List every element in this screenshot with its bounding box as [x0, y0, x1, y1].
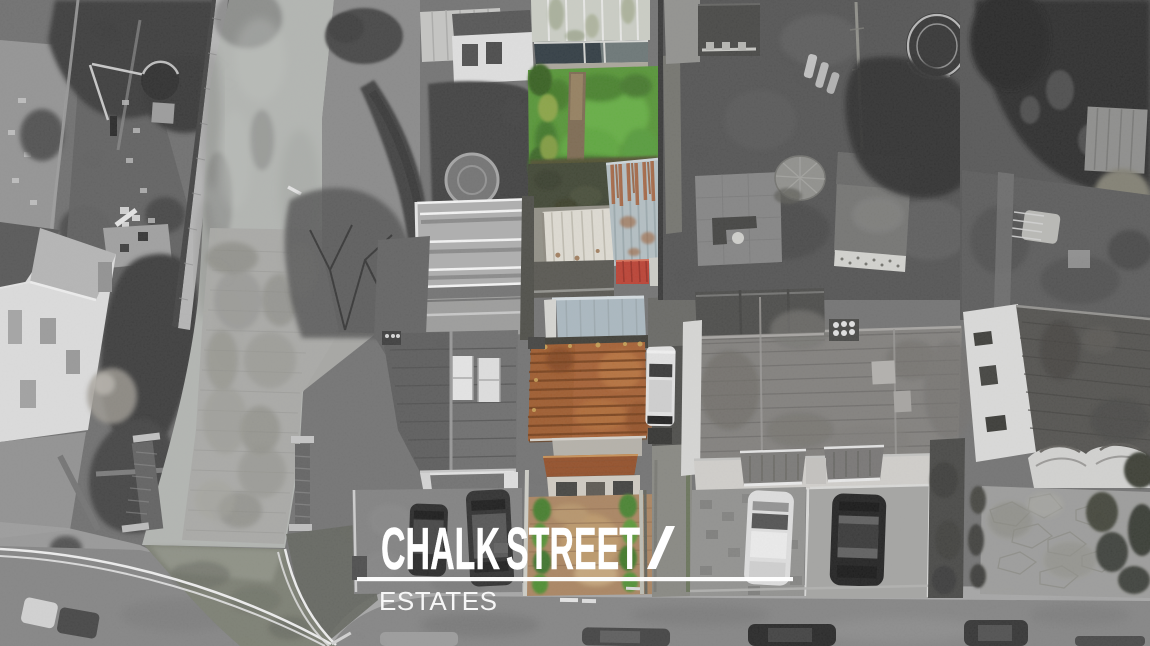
svg-text:STREET: STREET: [506, 516, 640, 582]
svg-text:CHALK: CHALK: [381, 516, 500, 582]
svg-text:ESTATES: ESTATES: [379, 586, 497, 616]
